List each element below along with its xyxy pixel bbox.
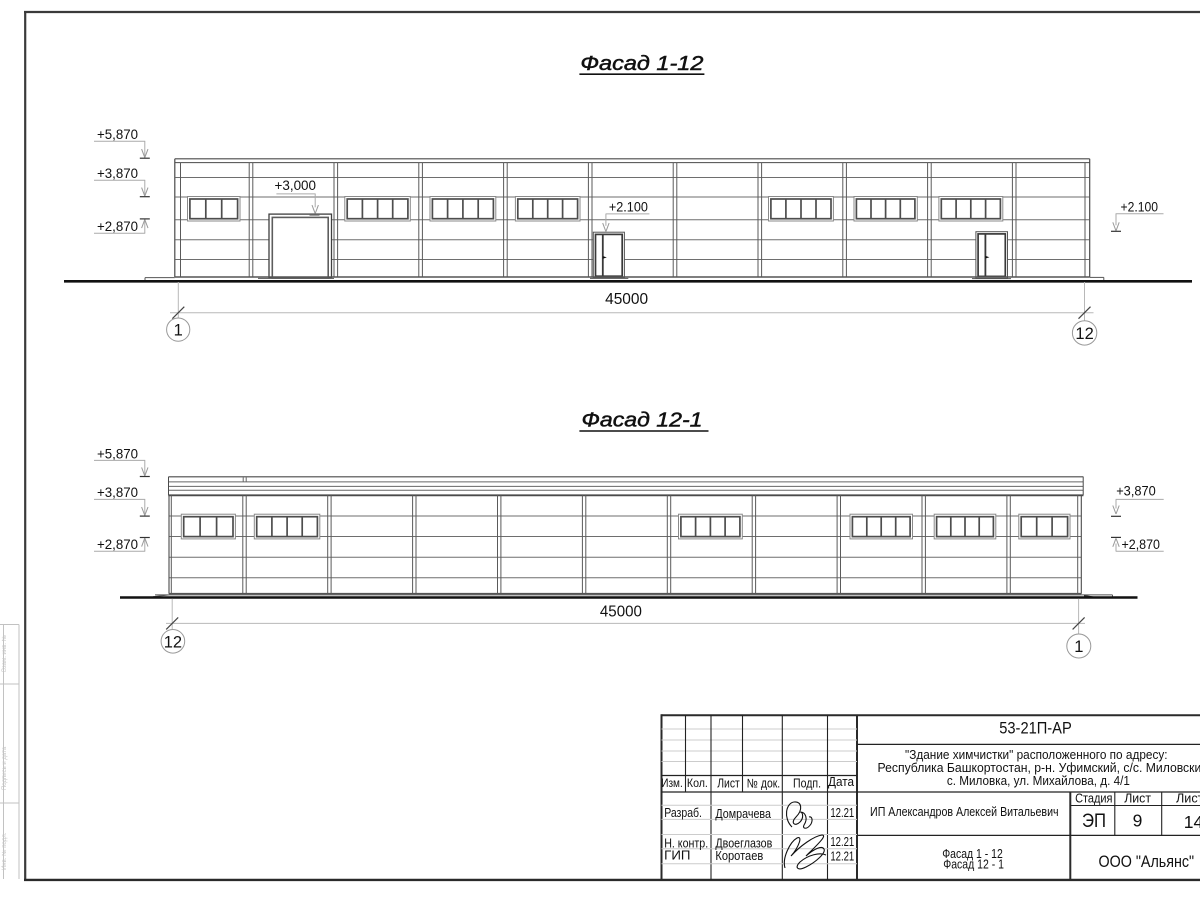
svg-text:Дата: Дата [828,775,854,789]
svg-text:Домрачева: Домрачева [715,807,771,821]
svg-text:+3,870: +3,870 [97,485,138,500]
svg-text:Лист: Лист [717,777,740,791]
svg-text:1: 1 [174,322,183,340]
svg-text:+2,870: +2,870 [97,537,138,552]
svg-text:Инв. № подл.: Инв. № подл. [1,832,8,870]
svg-text:12.21: 12.21 [830,849,854,863]
svg-text:+5,870: +5,870 [97,127,138,142]
svg-text:№ док.: № док. [747,777,780,791]
svg-text:12: 12 [1075,325,1093,343]
svg-text:ООО "Альянс": ООО "Альянс" [1099,852,1195,871]
svg-text:Изм.: Изм. [661,776,683,790]
svg-text:Коротаев: Коротаев [715,849,763,863]
svg-text:ГИП: ГИП [664,849,690,863]
svg-text:1: 1 [1074,638,1083,656]
svg-text:Разраб.: Разраб. [664,806,702,820]
svg-text:Стадия: Стадия [1075,792,1112,806]
svg-text:45000: 45000 [605,291,648,308]
svg-text:Кол.: Кол. [687,776,708,790]
svg-text:Фасад 12-1: Фасад 12-1 [582,409,703,431]
svg-text:12.21: 12.21 [830,806,854,820]
svg-text:12: 12 [164,633,182,651]
svg-text:45000: 45000 [600,604,642,621]
svg-text:+3,870: +3,870 [1116,484,1156,499]
svg-text:Листов: Листов [1176,792,1200,806]
svg-text:+2,870: +2,870 [1122,537,1161,552]
svg-text:+3,000: +3,000 [275,178,317,193]
svg-text:12.21: 12.21 [830,835,854,849]
svg-text:+2.100: +2.100 [1121,200,1159,215]
svg-text:+2.100: +2.100 [609,200,648,215]
svg-text:+2,870: +2,870 [97,219,138,234]
svg-text:Взам. инв. №: Взам. инв. № [1,635,8,672]
svg-text:Лист: Лист [1124,792,1151,806]
svg-text:Подп.: Подп. [793,777,821,791]
svg-text:Подпись и дата: Подпись и дата [2,746,8,790]
svg-text:ИП Александров Алексей Виталье: ИП Александров Алексей Витальевич [870,805,1059,819]
svg-text:Фасад 1-12: Фасад 1-12 [580,53,703,75]
svg-text:14: 14 [1184,812,1200,832]
svg-text:с. Миловка, ул. Михайлова, д.: с. Миловка, ул. Михайлова, д. 4/1 [947,773,1130,788]
svg-text:53-21П-АР: 53-21П-АР [999,719,1072,738]
svg-text:Фасад 12 - 1: Фасад 12 - 1 [943,857,1004,871]
svg-text:9: 9 [1133,811,1143,831]
svg-text:ЭП: ЭП [1082,811,1106,832]
svg-text:+5,870: +5,870 [97,446,138,461]
svg-text:+3,870: +3,870 [97,166,138,181]
